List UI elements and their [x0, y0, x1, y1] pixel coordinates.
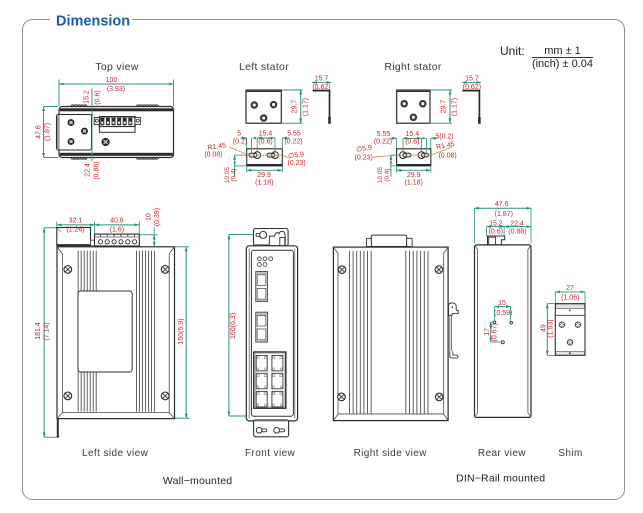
svg-text:(0.08): (0.08) — [438, 153, 456, 160]
svg-text:49: 49 — [541, 324, 548, 332]
svg-text:(0.23): (0.23) — [355, 154, 373, 161]
svg-text:22.4: 22.4 — [84, 163, 91, 177]
svg-text:Wall−mounted: Wall−mounted — [163, 475, 232, 487]
svg-text:40.6: 40.6 — [110, 217, 124, 224]
svg-text:15.2: 15.2 — [83, 90, 90, 104]
svg-text:(0.39): (0.39) — [154, 208, 161, 226]
svg-text:15.4: 15.4 — [405, 131, 419, 138]
svg-text:27: 27 — [566, 285, 574, 292]
svg-text:29.7: 29.7 — [291, 100, 298, 114]
svg-text:DIN−Rail mounted: DIN−Rail mounted — [456, 473, 545, 485]
svg-text:29.9: 29.9 — [407, 172, 421, 179]
svg-text:(0.59): (0.59) — [494, 310, 512, 317]
svg-text:(0.22): (0.22) — [374, 139, 392, 146]
svg-text:(1.18): (1.18) — [255, 179, 273, 186]
svg-text:(0.23): (0.23) — [287, 160, 305, 167]
svg-text:(0.88): (0.88) — [508, 229, 526, 236]
svg-text:(0.6): (0.6) — [258, 138, 272, 145]
svg-text:15.7: 15.7 — [465, 76, 479, 83]
svg-text:Rear view: Rear view — [478, 448, 526, 459]
svg-text:5(0.2): 5(0.2) — [435, 133, 453, 140]
svg-text:Top view: Top view — [95, 61, 138, 73]
svg-text:(1.87): (1.87) — [44, 123, 51, 141]
svg-text:(0.2): (0.2) — [233, 138, 247, 145]
svg-text:17: 17 — [484, 328, 491, 336]
svg-text:15.4: 15.4 — [259, 131, 273, 138]
svg-text:5.55: 5.55 — [377, 131, 391, 138]
svg-text:(0.6): (0.6) — [489, 229, 503, 236]
svg-text:(1.6): (1.6) — [110, 227, 124, 234]
svg-text:(0.4): (0.4) — [384, 168, 391, 181]
svg-text:Unit:: Unit: — [500, 44, 525, 58]
svg-text:(1.17): (1.17) — [302, 98, 309, 116]
svg-text:mm ± 1: mm ± 1 — [544, 45, 581, 57]
svg-text:(0.08): (0.08) — [204, 151, 222, 158]
svg-text:160(6.3): 160(6.3) — [230, 313, 237, 339]
svg-text:(0.22): (0.22) — [284, 138, 302, 145]
svg-text:29.9: 29.9 — [257, 172, 271, 179]
svg-text:Right stator: Right stator — [384, 61, 441, 73]
svg-text:Shim: Shim — [558, 448, 582, 459]
svg-text:100: 100 — [106, 77, 118, 84]
svg-text:(1.18): (1.18) — [405, 179, 423, 186]
svg-text:(3.93): (3.93) — [107, 86, 125, 93]
svg-text:(7.14): (7.14) — [44, 322, 51, 340]
svg-text:5: 5 — [237, 131, 241, 138]
svg-text:15.7: 15.7 — [315, 76, 329, 83]
svg-text:29.7: 29.7 — [441, 100, 448, 114]
svg-text:47.6: 47.6 — [495, 201, 509, 208]
svg-text:(0.67): (0.67) — [492, 323, 499, 341]
svg-text:(1.26): (1.26) — [66, 227, 84, 234]
svg-text:10.05: 10.05 — [377, 167, 384, 183]
svg-text:(inch) ± 0.04: (inch) ± 0.04 — [532, 58, 593, 70]
svg-text:(1.06): (1.06) — [561, 294, 579, 301]
svg-text:181.4: 181.4 — [35, 322, 42, 340]
svg-text:(1.17): (1.17) — [452, 98, 459, 116]
svg-text:Front view: Front view — [245, 448, 296, 459]
svg-text:Left side view: Left side view — [82, 448, 149, 459]
svg-text:(0.88): (0.88) — [93, 161, 100, 179]
svg-text:Dimension: Dimension — [56, 14, 130, 30]
svg-text:(1.87): (1.87) — [495, 211, 513, 218]
svg-text:150(5.9): 150(5.9) — [178, 318, 185, 344]
svg-text:15: 15 — [498, 300, 506, 307]
svg-text:(1.93): (1.93) — [548, 319, 555, 337]
svg-text:Right side view: Right side view — [354, 448, 428, 459]
svg-text:47.6: 47.6 — [36, 125, 43, 139]
svg-text:(0.4): (0.4) — [230, 168, 237, 181]
svg-text:32.1: 32.1 — [69, 217, 83, 224]
svg-text:(0.6): (0.6) — [94, 90, 101, 104]
svg-text:(0.6): (0.6) — [405, 139, 419, 146]
svg-text:5.55: 5.55 — [287, 131, 301, 138]
svg-text:Left stator: Left stator — [239, 61, 289, 73]
svg-text:10: 10 — [146, 213, 153, 221]
